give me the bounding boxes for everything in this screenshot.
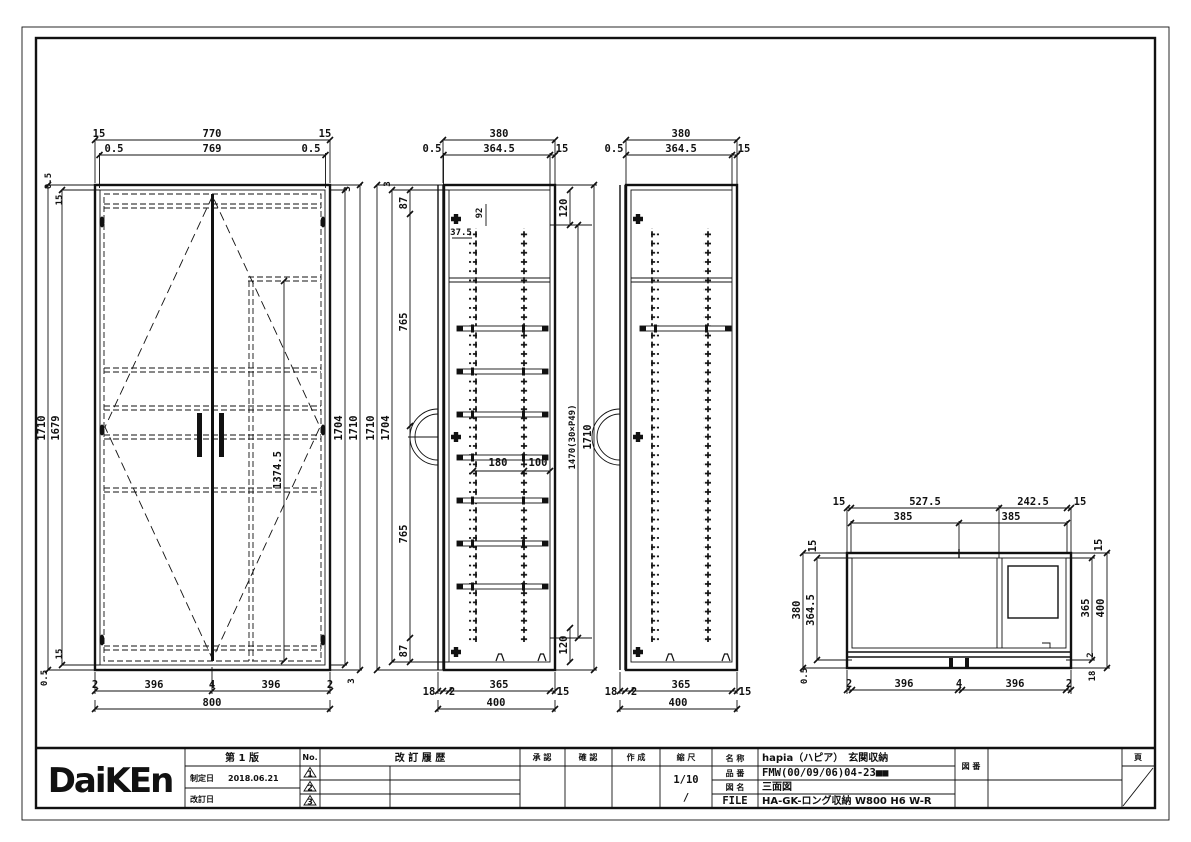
dim-label: 364.5: [665, 143, 697, 155]
dim-label: 527.5: [909, 496, 941, 508]
fig-label: 図 名: [726, 782, 745, 792]
dim-label: 1679: [50, 415, 62, 440]
dim-label: 0.5: [605, 143, 624, 155]
enacted-date: 2018.06.21: [228, 774, 279, 783]
dim-label: 15: [557, 686, 570, 698]
shelf: [457, 368, 548, 376]
dim-label: 800: [203, 697, 222, 709]
mirror-hatch: [1008, 566, 1058, 618]
sectionA-dim-ticks: [374, 137, 597, 712]
door-handle-right: [219, 413, 224, 457]
carcass-inner: [631, 190, 732, 662]
dim-label: 242.5: [1017, 496, 1049, 508]
scale-value: 1/10: [673, 774, 698, 786]
shelf: [457, 411, 548, 419]
base-brace: [722, 654, 730, 661]
title-block-grid: [185, 748, 1155, 808]
door-handle-right: [965, 658, 969, 668]
dim-label: 15: [319, 128, 332, 140]
hinge-icon: [451, 647, 461, 657]
bracket-detail: [1042, 643, 1050, 648]
dim-label: 92: [475, 208, 485, 219]
part-label: 品 番: [726, 768, 746, 778]
file-value: HA-GK-ロング収納 W800 H6 W-R: [762, 794, 932, 807]
rev-mark: 1: [307, 770, 313, 779]
plan-view: 15 527.5 242.5 15 385 385 15 380 364.5 0…: [791, 496, 1110, 694]
drawing-sheet: 15 770 15 0.5 769 0.5 1710 1679 0.5 15 1…: [0, 0, 1191, 842]
dim-label: 1470(30×P49): [568, 404, 578, 469]
dim-label: 1704: [380, 415, 392, 440]
dim-label: 380: [672, 128, 691, 140]
dim-label: 2: [449, 686, 455, 698]
fixed-shelf: [449, 278, 550, 282]
no-label: No.: [302, 753, 317, 762]
dim-label: 87: [398, 197, 410, 210]
dim-label: 15: [807, 540, 819, 553]
dim-label: 365: [672, 679, 691, 691]
divider-panel: [997, 558, 1002, 648]
cabinet-outline: [847, 553, 1071, 668]
check-label: 確 認: [579, 752, 598, 762]
dim-label: 385: [894, 511, 913, 523]
dim-label: 396: [1006, 678, 1025, 690]
dim-label: 380: [791, 601, 803, 620]
door-slab: [438, 185, 443, 670]
dim-label: 37.5: [450, 228, 472, 238]
shelf: [457, 540, 548, 548]
dim-label: 18: [605, 686, 618, 698]
dim-label: 1374.5: [272, 451, 284, 489]
approve-label: 承 認: [533, 752, 552, 762]
dim-label: 15: [1093, 539, 1105, 552]
shelf: [457, 583, 548, 591]
file-label: FILE: [722, 795, 747, 807]
dim-label: 2: [92, 679, 98, 691]
part-value: FMW(00/09/06)04-23■■: [762, 767, 889, 779]
dim-label: 180: [489, 457, 508, 469]
page-diagonal: [1123, 768, 1153, 806]
dim-label: 400: [669, 697, 688, 709]
dim-label: 1710: [36, 415, 48, 440]
page-label: 頁: [1134, 753, 1142, 762]
dim-label: 15: [739, 686, 752, 698]
dim-label: 0.5: [44, 173, 54, 189]
base-brace: [496, 654, 504, 661]
dim-label: 18: [423, 686, 436, 698]
front-view: 15 770 15 0.5 769 0.5 1710 1679 0.5 15 1…: [36, 128, 363, 712]
cabinet-inner: [852, 558, 1066, 648]
dim-label: 396: [262, 679, 281, 691]
dim-label: 2: [631, 686, 637, 698]
daiken-logo: DaiKEn: [48, 761, 173, 801]
dim-label: 15: [556, 143, 569, 155]
dim-label: 2: [846, 678, 852, 690]
dim-label: 3: [343, 186, 353, 191]
shelf-pin-holes-rear: [703, 228, 711, 642]
name-label: 名 称: [726, 753, 745, 763]
door-handle-left: [949, 658, 953, 668]
dim-label: 0.5: [40, 670, 50, 686]
door-handle-arc: [592, 409, 620, 465]
door-slab: [620, 185, 625, 670]
scale-label: 縮 尺: [677, 752, 696, 762]
dim-label: 1710: [348, 415, 360, 440]
carcass-outline: [626, 185, 737, 670]
dim-label: 770: [203, 128, 222, 140]
dim-label: 769: [203, 143, 222, 155]
partition-hidden-lines: [249, 281, 253, 661]
base-brace: [538, 654, 546, 661]
shelf-pin-holes-front: [651, 228, 659, 642]
dim-label: 765: [398, 313, 410, 332]
revision-triangles: 1 2 3: [304, 768, 316, 807]
base-brace: [666, 654, 674, 661]
dim-label: 15: [55, 649, 65, 660]
dim-label: 4: [956, 678, 962, 690]
sectionB-dim-ticks: [617, 137, 740, 712]
dim-label: 15: [738, 143, 751, 155]
shelf: [457, 497, 548, 505]
sectionB-dim-lines: [620, 140, 737, 712]
dim-label: 120: [558, 199, 570, 218]
cad-drawing: 15 770 15 0.5 769 0.5 1710 1679 0.5 15 1…: [0, 0, 1191, 842]
dim-label: 3: [383, 181, 393, 186]
dim-label: 15: [833, 496, 846, 508]
rev-mark: 2: [307, 784, 313, 793]
shelf: [640, 325, 731, 333]
create-label: 作 成: [627, 752, 646, 762]
dim-label: 0.5: [800, 668, 810, 684]
dim-label: 765: [398, 525, 410, 544]
title-block: DaiKEn 第 1 版 制定日 2018.06.21 改訂日 No. 1 2 …: [36, 748, 1155, 808]
shelf-pin-holes-rear: [520, 228, 528, 642]
hinge-icon: [633, 214, 643, 224]
hinge-icon: [633, 432, 643, 442]
dim-label: 400: [487, 697, 506, 709]
dim-label: 2: [327, 679, 333, 691]
dim-label: 365: [490, 679, 509, 691]
dim-label: 0.5: [302, 143, 321, 155]
dim-label: 396: [895, 678, 914, 690]
dim-label: 2: [1086, 652, 1096, 657]
fixed-shelf: [631, 278, 732, 282]
hinge-icon: [633, 647, 643, 657]
dim-label: 15: [55, 195, 65, 206]
fig-value: 三面図: [762, 781, 792, 793]
enacted-label: 制定日: [190, 773, 214, 783]
carcass-outline: [444, 185, 555, 670]
revised-label: 改訂日: [190, 794, 214, 804]
section-view-a: 380 0.5 364.5 15 3 1710 1704 87 765 765 …: [365, 128, 597, 712]
door-slab: [847, 652, 1071, 657]
edition-label: 第 1 版: [225, 751, 259, 764]
history-header: 改 訂 履 歴: [395, 751, 445, 764]
name-value: hapia（ハピア） 玄関収納: [762, 751, 888, 764]
rev-mark: 3: [307, 798, 313, 807]
shelf: [457, 325, 548, 333]
dim-label: 0.5: [105, 143, 124, 155]
shelf-pin-holes-front: [469, 228, 477, 642]
carcass-inner: [449, 190, 550, 662]
dim-label: 120: [558, 636, 570, 655]
dim-label: 380: [490, 128, 509, 140]
dim-label: 15: [93, 128, 106, 140]
dim-label: 364.5: [805, 594, 817, 626]
dim-label: 1710: [365, 415, 377, 440]
dim-label: 396: [145, 679, 164, 691]
door-handle-left: [197, 413, 202, 457]
dim-label: 400: [1095, 599, 1107, 618]
dim-label: 100: [529, 457, 548, 469]
dim-label: 2: [1066, 678, 1072, 690]
front-dim-ticks: [45, 137, 363, 712]
dim-label: 365: [1080, 599, 1092, 618]
hinge-icon: [451, 432, 461, 442]
dim-label: 3: [347, 678, 357, 683]
hinge-icon: [451, 214, 461, 224]
dim-label: 15: [1074, 496, 1087, 508]
dim-label: 0.5: [423, 143, 442, 155]
section-view-b: 380 0.5 364.5 15 18 2 365 15 400: [592, 128, 751, 712]
plan-dim-lines: [803, 505, 1110, 694]
scale-value-2: /: [683, 792, 689, 804]
dim-label: 1704: [333, 415, 345, 440]
dim-label: 87: [398, 645, 410, 658]
dim-label: 4: [209, 679, 215, 691]
dim-label: 18: [1088, 671, 1098, 682]
dim-label: 364.5: [483, 143, 515, 155]
dwgno-label: 図 番: [962, 761, 982, 771]
dim-label: 385: [1002, 511, 1021, 523]
